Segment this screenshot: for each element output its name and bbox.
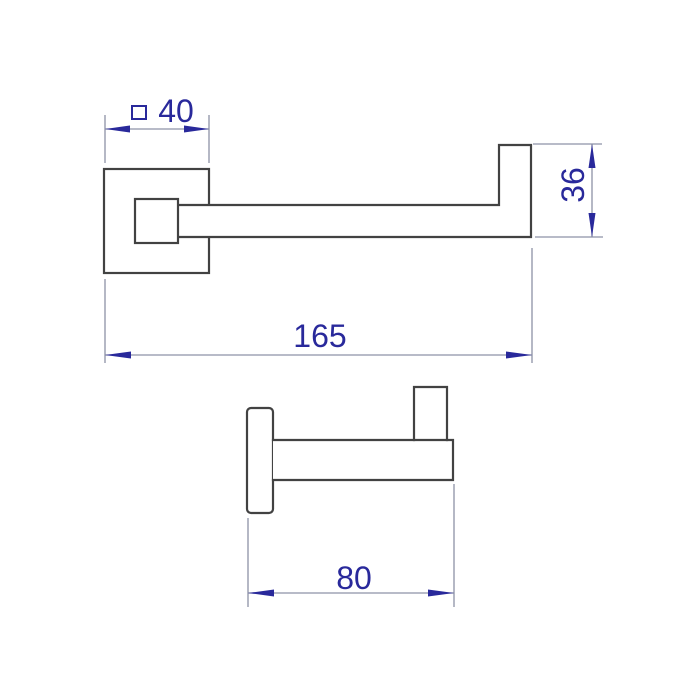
square-symbol-icon <box>132 106 146 119</box>
side-end-upturn <box>414 387 447 440</box>
dimension-value-wall-projection: 80 <box>336 560 372 596</box>
front-arm-boss <box>135 199 178 243</box>
arrowhead-right-icon <box>506 352 532 359</box>
dimension-drawing: 40 165 36 <box>0 0 700 700</box>
dimension-value-plate-size: 40 <box>158 93 194 129</box>
arrowhead-right-icon <box>428 590 454 597</box>
technical-drawing-canvas: 40 165 36 <box>0 0 700 700</box>
front-arm-outline <box>178 145 531 237</box>
side-mount-plate <box>247 408 273 513</box>
dimension-wall-projection: 80 <box>248 484 454 607</box>
arrowhead-up-icon <box>589 144 596 168</box>
dimension-value-overall-length: 165 <box>293 318 346 354</box>
arrowhead-down-icon <box>589 213 596 237</box>
arrowhead-left-icon <box>248 590 274 597</box>
side-view <box>247 387 453 513</box>
arrowhead-left-icon <box>105 352 131 359</box>
dimension-end-height: 36 <box>533 144 603 237</box>
arrowhead-left-icon <box>105 126 130 133</box>
dimension-plate-size: 40 <box>105 93 209 163</box>
side-arm-bar <box>273 440 453 480</box>
dimension-value-end-height: 36 <box>555 167 591 203</box>
front-view <box>104 145 531 273</box>
